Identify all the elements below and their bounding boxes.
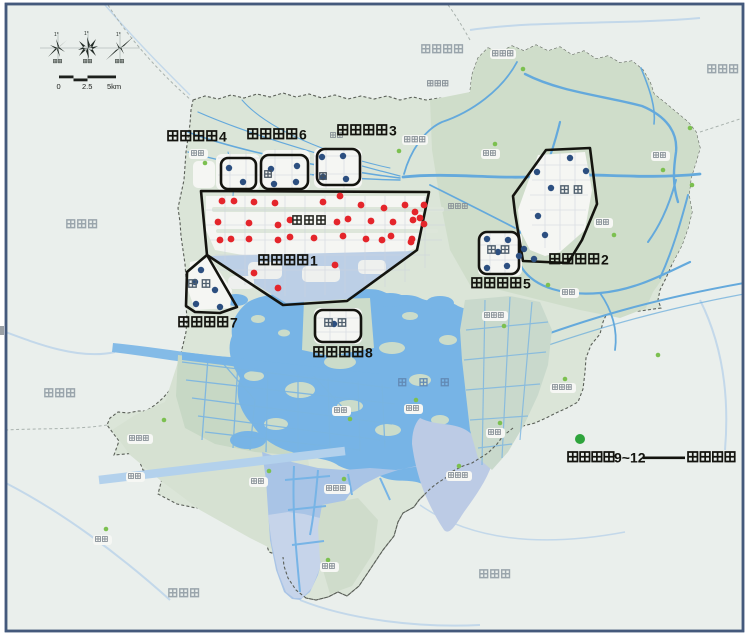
svg-text:2.5: 2.5 [82, 82, 92, 91]
svg-text:8: 8 [365, 345, 373, 361]
svg-text:1*: 1* [84, 31, 89, 37]
svg-text:1*: 1* [116, 32, 121, 38]
svg-text:2: 2 [601, 252, 609, 268]
svg-text:7: 7 [230, 315, 238, 331]
svg-text:4: 4 [219, 129, 227, 145]
svg-text:1*: 1* [54, 32, 59, 38]
svg-text:5km: 5km [107, 82, 121, 91]
svg-text:5: 5 [523, 276, 531, 292]
svg-text:6: 6 [299, 127, 307, 143]
svg-text:3: 3 [389, 123, 397, 139]
svg-text:1: 1 [310, 253, 318, 269]
svg-text:0: 0 [57, 82, 61, 91]
svg-text:9~12: 9~12 [614, 450, 646, 466]
